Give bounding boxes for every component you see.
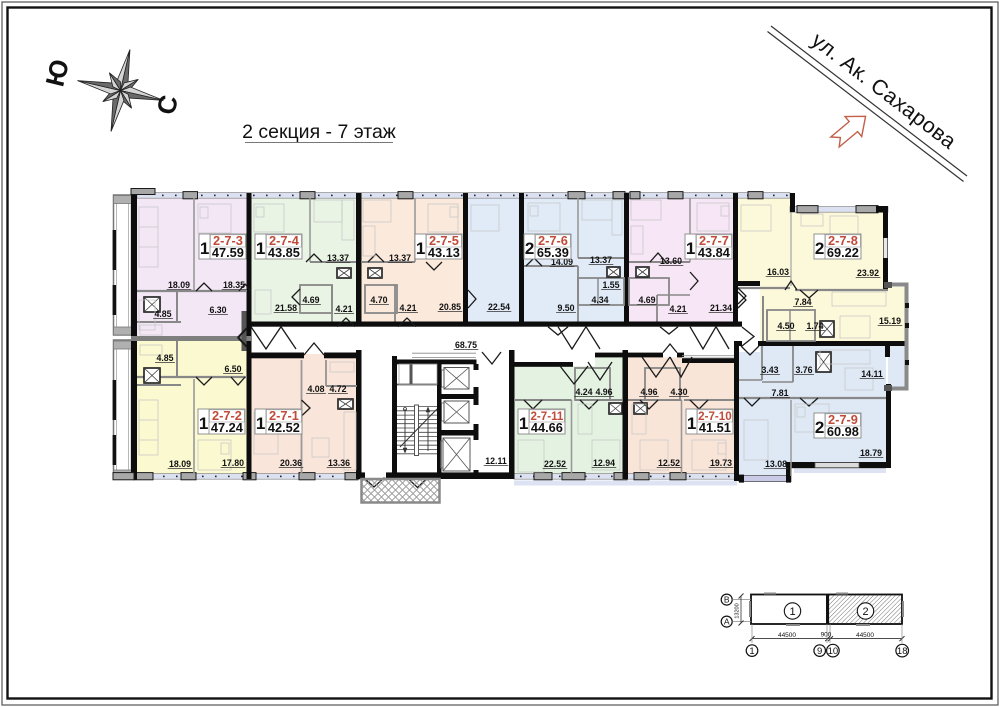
svg-text:42.52: 42.52 — [268, 420, 300, 435]
svg-text:2: 2 — [525, 239, 534, 258]
svg-text:1.55: 1.55 — [602, 280, 619, 290]
svg-text:13.60: 13.60 — [660, 256, 682, 266]
svg-text:900: 900 — [821, 632, 832, 639]
svg-text:47.59: 47.59 — [212, 245, 244, 260]
svg-text:13200: 13200 — [735, 603, 741, 618]
svg-text:20.85: 20.85 — [439, 302, 461, 312]
svg-text:1: 1 — [200, 239, 209, 258]
svg-text:12.52: 12.52 — [658, 458, 680, 468]
svg-text:4.85: 4.85 — [156, 353, 173, 363]
svg-text:7.81: 7.81 — [771, 388, 788, 398]
svg-text:7.84: 7.84 — [794, 297, 811, 307]
svg-text:2: 2 — [815, 418, 824, 437]
svg-text:43.85: 43.85 — [268, 245, 300, 260]
svg-text:14.11: 14.11 — [861, 369, 883, 379]
svg-text:4.69: 4.69 — [302, 295, 319, 305]
svg-text:12.11: 12.11 — [485, 456, 507, 466]
svg-text:22.54: 22.54 — [488, 302, 510, 312]
svg-text:6.50: 6.50 — [224, 364, 241, 374]
svg-text:1: 1 — [686, 239, 695, 258]
svg-text:2: 2 — [815, 239, 824, 258]
svg-text:1: 1 — [749, 646, 754, 657]
svg-text:15.19: 15.19 — [879, 316, 901, 326]
svg-text:18.09: 18.09 — [168, 280, 190, 290]
svg-text:19.73: 19.73 — [710, 458, 732, 468]
svg-text:1: 1 — [256, 239, 265, 258]
svg-text:47.24: 47.24 — [211, 420, 244, 435]
svg-text:1: 1 — [789, 606, 795, 618]
svg-text:69.22: 69.22 — [827, 245, 859, 260]
svg-text:3.76: 3.76 — [795, 365, 812, 375]
svg-text:13.37: 13.37 — [590, 255, 612, 265]
svg-text:13.37: 13.37 — [389, 253, 411, 263]
svg-text:1: 1 — [256, 414, 265, 433]
svg-text:43.84: 43.84 — [698, 245, 731, 260]
svg-text:23.92: 23.92 — [857, 268, 879, 278]
svg-text:44.66: 44.66 — [531, 420, 563, 435]
svg-text:4.24: 4.24 — [575, 387, 592, 397]
svg-text:В: В — [724, 595, 730, 605]
svg-text:4.30: 4.30 — [670, 387, 687, 397]
svg-text:4.08: 4.08 — [307, 384, 324, 394]
svg-text:12.94: 12.94 — [593, 458, 615, 468]
svg-text:4.69: 4.69 — [638, 295, 655, 305]
svg-text:4.34: 4.34 — [591, 295, 608, 305]
svg-text:2 секция - 7 этаж: 2 секция - 7 этаж — [242, 121, 396, 143]
svg-text:44500: 44500 — [778, 632, 796, 639]
svg-text:41.51: 41.51 — [699, 420, 731, 435]
svg-text:43.13: 43.13 — [428, 245, 460, 260]
svg-text:4.21: 4.21 — [399, 303, 416, 313]
svg-text:4.21: 4.21 — [669, 304, 686, 314]
svg-text:2: 2 — [862, 606, 868, 618]
svg-text:18.09: 18.09 — [169, 459, 191, 469]
svg-text:1: 1 — [199, 414, 208, 433]
svg-text:20.36: 20.36 — [280, 458, 302, 468]
svg-text:1.74: 1.74 — [806, 321, 823, 331]
svg-text:18.79: 18.79 — [860, 448, 882, 458]
svg-text:16.03: 16.03 — [767, 267, 789, 277]
svg-text:18: 18 — [897, 646, 908, 657]
svg-text:44500: 44500 — [856, 632, 874, 639]
svg-text:18.35: 18.35 — [223, 280, 245, 290]
svg-text:4.96: 4.96 — [640, 387, 657, 397]
svg-text:4.96: 4.96 — [595, 387, 612, 397]
svg-text:13.36: 13.36 — [328, 458, 350, 468]
svg-text:13.37: 13.37 — [327, 253, 349, 263]
svg-text:4.70: 4.70 — [370, 295, 387, 305]
svg-text:60.98: 60.98 — [827, 424, 859, 439]
svg-text:13.08: 13.08 — [765, 459, 787, 469]
svg-text:9: 9 — [817, 646, 822, 657]
svg-text:4.85: 4.85 — [154, 309, 171, 319]
svg-text:6.30: 6.30 — [209, 305, 226, 315]
svg-text:17.80: 17.80 — [222, 458, 244, 468]
svg-text:22.52: 22.52 — [544, 459, 566, 469]
svg-text:21.34: 21.34 — [710, 303, 732, 313]
svg-text:4.21: 4.21 — [335, 304, 352, 314]
svg-text:1: 1 — [687, 414, 696, 433]
svg-text:1: 1 — [519, 414, 528, 433]
svg-text:21.58: 21.58 — [275, 303, 297, 313]
svg-text:А: А — [724, 617, 730, 627]
svg-text:10: 10 — [828, 646, 839, 657]
svg-text:65.39: 65.39 — [537, 245, 569, 260]
svg-text:4.72: 4.72 — [329, 384, 346, 394]
svg-text:4.50: 4.50 — [777, 321, 794, 331]
svg-text:1: 1 — [416, 239, 425, 258]
svg-text:9.50: 9.50 — [557, 303, 574, 313]
svg-text:68.75: 68.75 — [455, 340, 477, 350]
svg-text:3.43: 3.43 — [761, 365, 778, 375]
